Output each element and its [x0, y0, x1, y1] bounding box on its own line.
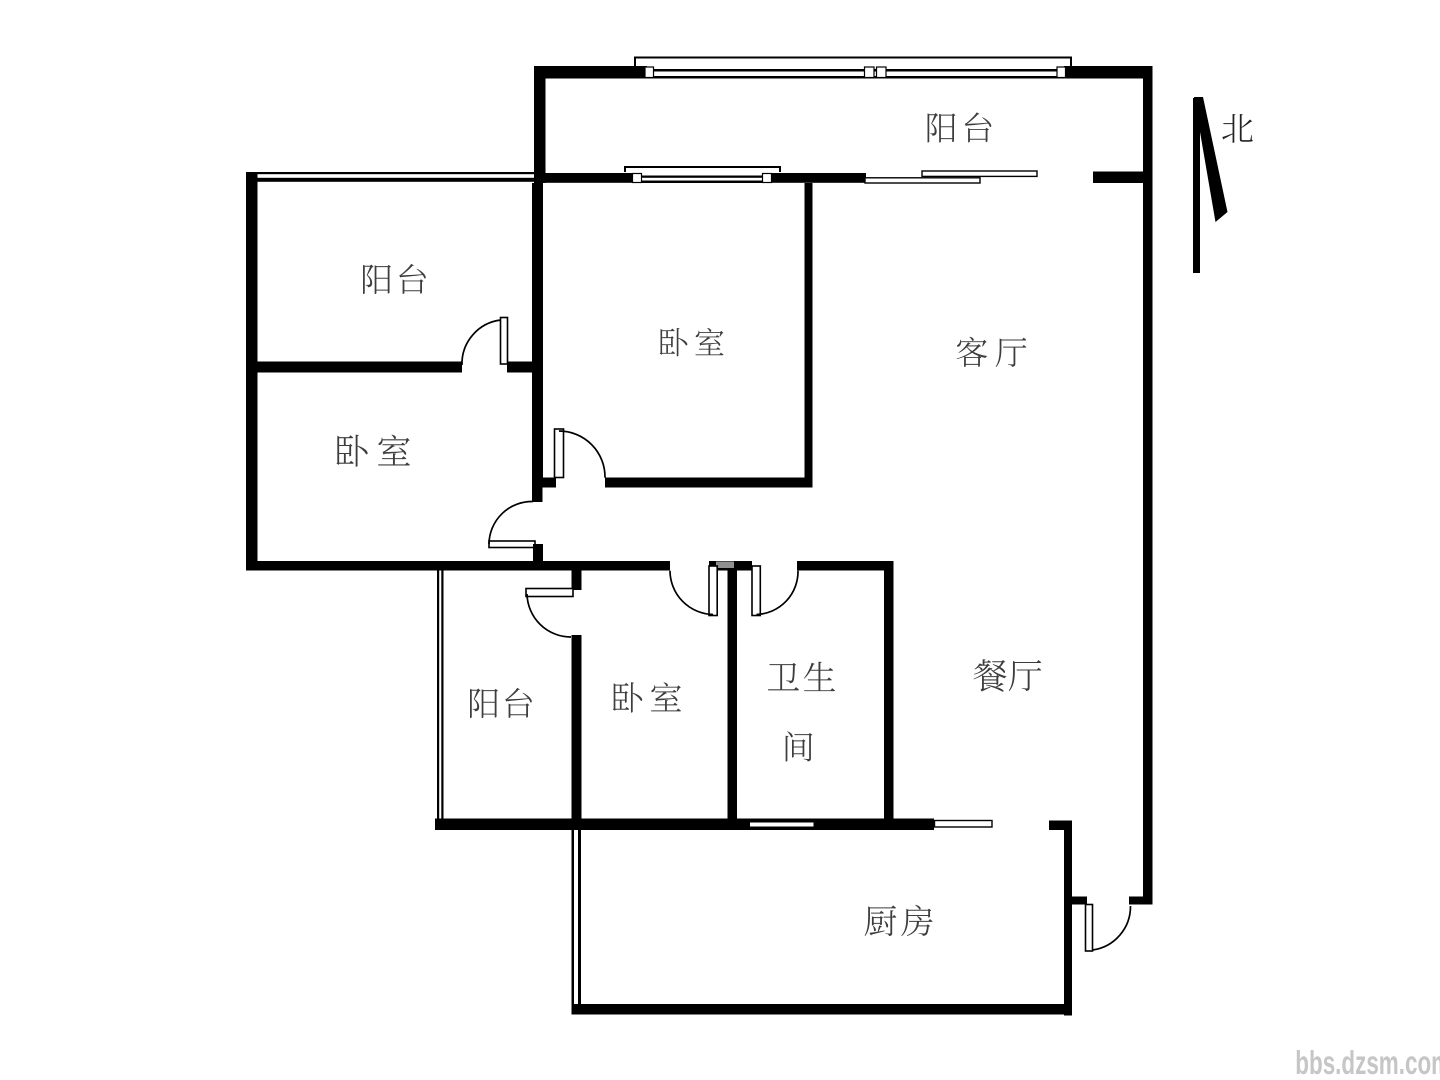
svg-text:bbs.dzsm.com: bbs.dzsm.com — [1295, 1044, 1440, 1080]
